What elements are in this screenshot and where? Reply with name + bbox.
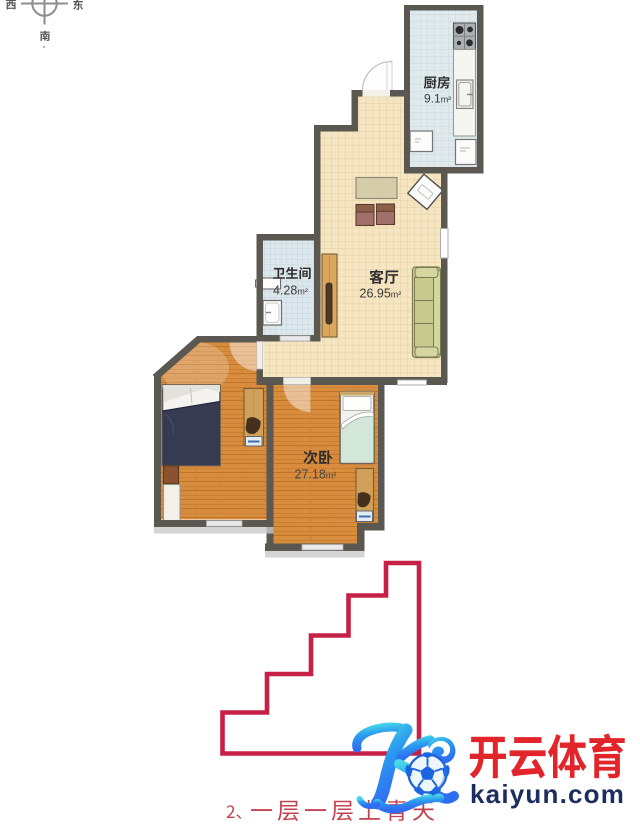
- svg-text:kaiyun.com: kaiyun.com: [470, 779, 625, 809]
- svg-text:27.18m²: 27.18m²: [295, 468, 337, 482]
- svg-text:26.95m²: 26.95m²: [360, 287, 402, 301]
- svg-text:4.28m²: 4.28m²: [273, 284, 308, 298]
- svg-text:9.1m²: 9.1m²: [424, 92, 451, 106]
